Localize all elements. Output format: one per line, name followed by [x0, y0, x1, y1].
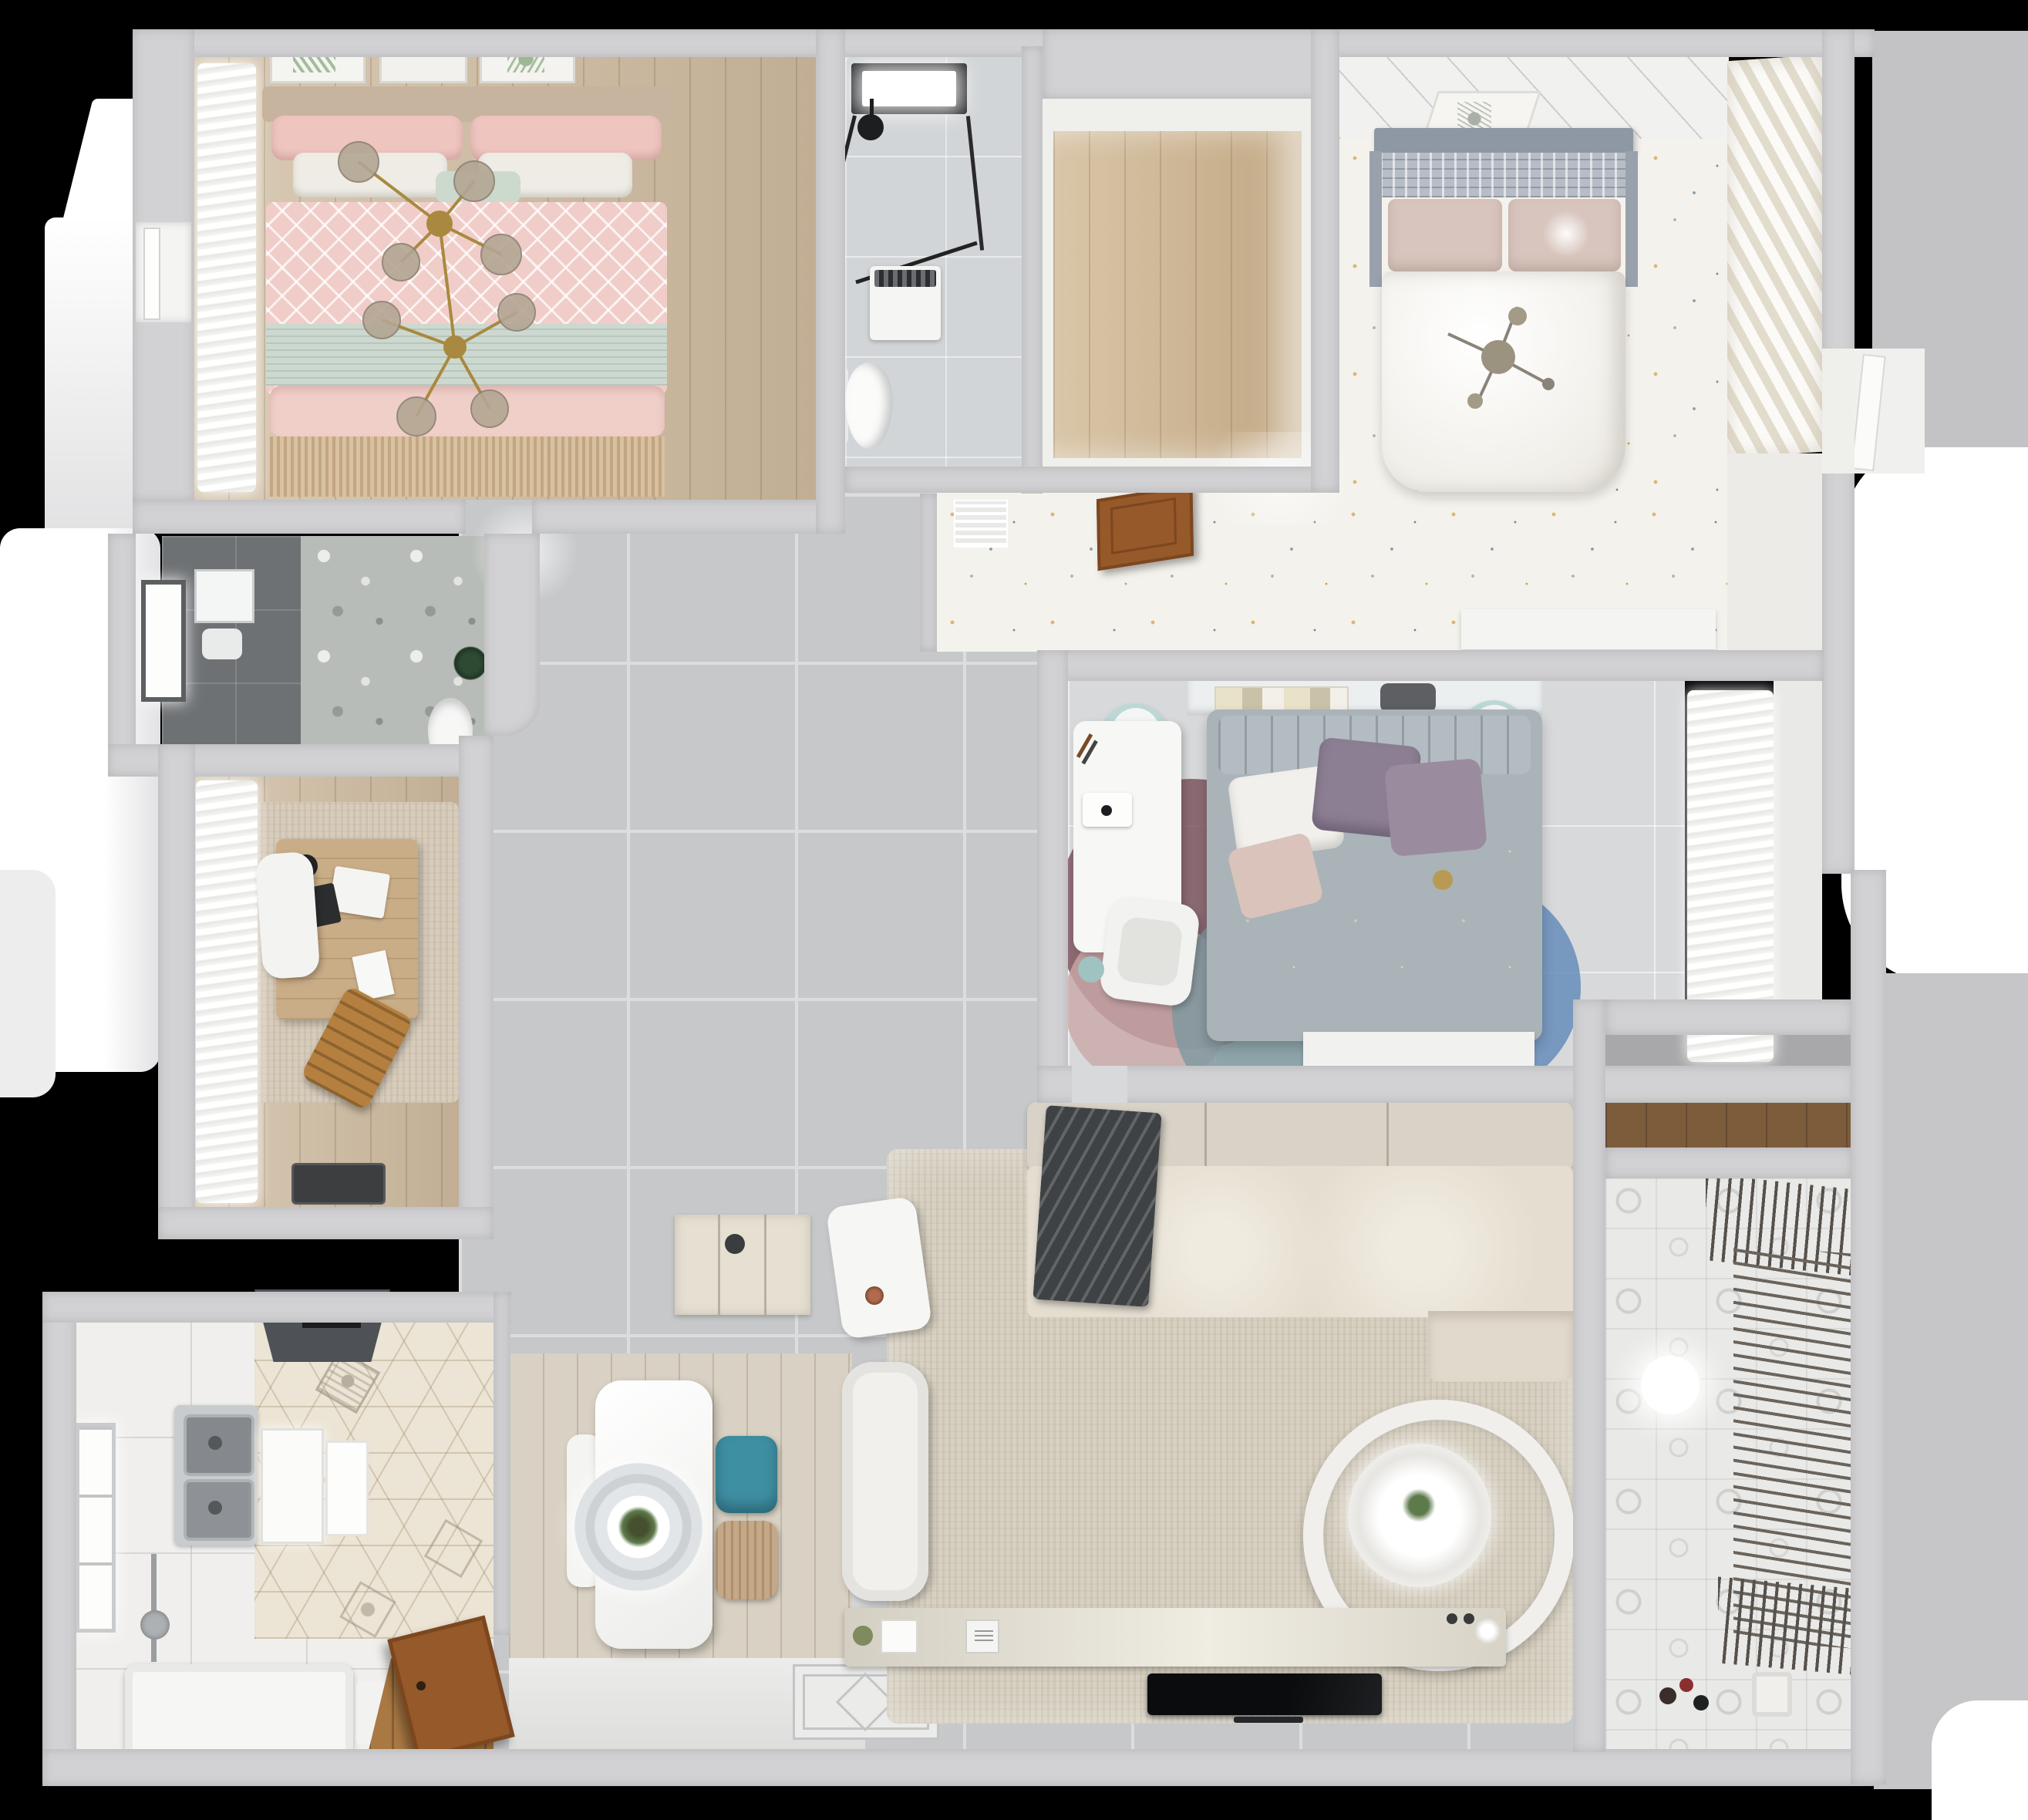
wall-right-lower: [1851, 870, 1886, 1785]
wall-study-bottom: [158, 1207, 494, 1239]
wall-below-closet: [845, 467, 1339, 493]
wall-study-left: [158, 744, 195, 1238]
front-door-leaf: [143, 228, 160, 320]
wall-kitchen-top: [42, 1292, 511, 1323]
center-desk-computer-logo: [1101, 805, 1112, 816]
tv-stand-bar: [1234, 1717, 1303, 1723]
bathroom-small-window: [141, 580, 186, 702]
tv-console-decor-roll: [1474, 1618, 1501, 1644]
dining-chair-teal: [716, 1436, 777, 1513]
sofa-chaise: [1428, 1311, 1573, 1382]
center-mint-cup: [1078, 956, 1104, 982]
tv-console-knobs: [1447, 1613, 1457, 1624]
wall-nursery-bath-divider: [816, 29, 845, 534]
sofa-throw-charcoal: [1033, 1105, 1161, 1307]
center-duvet-gold-dot: [1433, 870, 1453, 890]
kitchen-sink-drain-1: [208, 1436, 222, 1450]
washing-machine-panel: [874, 270, 936, 287]
center-shelf-bowl: [1380, 683, 1436, 713]
wall-bath2-left: [108, 534, 136, 777]
dining-sideboard-vase: [725, 1234, 745, 1254]
exterior-white-corner: [1932, 1700, 2028, 1820]
wall-niche-top: [1605, 999, 1852, 1035]
master-stick-lamp: [1433, 299, 1564, 415]
kitchen-cabinet-panel-1: [261, 1428, 324, 1544]
wall-nursery-bottom-right: [532, 500, 845, 534]
tv-console: [844, 1608, 1506, 1667]
shower-arm: [870, 99, 874, 125]
center-pillow-purple-2: [1384, 758, 1487, 857]
kitchen-sink-drain-2: [208, 1501, 222, 1515]
living-armchair: [842, 1362, 928, 1601]
exterior-gray-right-bottom: [1874, 973, 2028, 1789]
wall-corridor-bedroom-divider: [1037, 650, 1824, 681]
floorplan-canvas: [0, 0, 2028, 1820]
bedroom-pink-curtains: [197, 63, 256, 492]
dining-centerpiece-plant: [618, 1505, 659, 1549]
kitchen-faucet-knob: [140, 1610, 170, 1640]
wall-closet-master-divider: [1311, 29, 1339, 492]
study-chair-white: [254, 851, 320, 980]
tv-console-decor-books: [881, 1619, 918, 1653]
kitchen-window: [76, 1423, 116, 1633]
tv-console-decor-plate: [853, 1626, 873, 1646]
tv-console-decor-box: [965, 1619, 999, 1653]
wall-kitchen-left: [42, 1292, 76, 1785]
kitchen-cabinet-panel-2: [325, 1441, 369, 1536]
closet-room-floor: [1053, 131, 1302, 458]
wall-living-balcony-divider: [1573, 999, 1605, 1752]
wall-bath-right: [1022, 46, 1043, 494]
bathroom-small-mirror: [194, 569, 254, 623]
kitchen-pipe: [151, 1554, 157, 1662]
master-pillow-light: [1542, 210, 1590, 258]
balcony-rack-bottom-rails: [1718, 1576, 1851, 1674]
study-doormat: [291, 1163, 386, 1205]
balcony-toy-2: [1679, 1678, 1693, 1692]
tv-flat: [1147, 1673, 1382, 1715]
bathroom-skylight-light: [862, 71, 956, 106]
wall-kitchen-dining-divider: [494, 1292, 510, 1635]
balcony-toy-1: [1659, 1687, 1676, 1704]
right-wall-door-gap: [1822, 349, 1855, 474]
kitchen-door-knob: [416, 1681, 426, 1690]
wall-niche-bottom: [1605, 1148, 1852, 1178]
center-desk-chair-seat: [1116, 916, 1184, 988]
living-cube-table: [826, 1196, 933, 1340]
master-pillow-1: [1388, 199, 1502, 271]
ac-vent-grille: [954, 500, 1008, 548]
balcony-ceiling-light: [1641, 1356, 1700, 1414]
master-bed-canopy-bar: [1374, 128, 1633, 154]
exterior-glow-bottom-left: [0, 870, 56, 1097]
master-bed-side-rail-right: [1625, 151, 1638, 287]
master-sideboard-low: [1461, 609, 1716, 649]
master-slatted-wardrobe: [1727, 55, 1822, 459]
wall-closet-top: [1043, 29, 1339, 99]
balcony-mini-bench: [1752, 1672, 1792, 1717]
master-wardrobe-sill: [1727, 453, 1822, 652]
master-bed-side-rail-left: [1369, 151, 1382, 287]
study-curtains: [196, 780, 258, 1203]
coffee-table-plant: [1402, 1488, 1436, 1522]
dining-sideboard: [675, 1215, 810, 1315]
wall-bedroom-center-left: [1037, 650, 1068, 1103]
gold-chandelier: [324, 116, 578, 455]
wall-nursery-bottom-left: [133, 500, 466, 534]
living-cube-flower: [865, 1286, 884, 1305]
bathroom-small-plant: [453, 646, 487, 680]
wall-bath2-right-column: [484, 534, 540, 736]
wall-bedroom-center-bottom: [1037, 1066, 1855, 1103]
balcony-toy-3: [1693, 1695, 1709, 1710]
bedroom-center-door-gap: [1072, 1066, 1127, 1103]
wall-study-right: [459, 736, 494, 1238]
master-bed-canopy-lattice: [1380, 153, 1627, 197]
wall-bottom: [42, 1749, 1875, 1786]
wall-corridor-stub: [920, 494, 937, 652]
center-bench: [1303, 1032, 1534, 1066]
dining-chair-wicker: [716, 1521, 777, 1599]
bathroom-small-sink: [202, 629, 242, 659]
